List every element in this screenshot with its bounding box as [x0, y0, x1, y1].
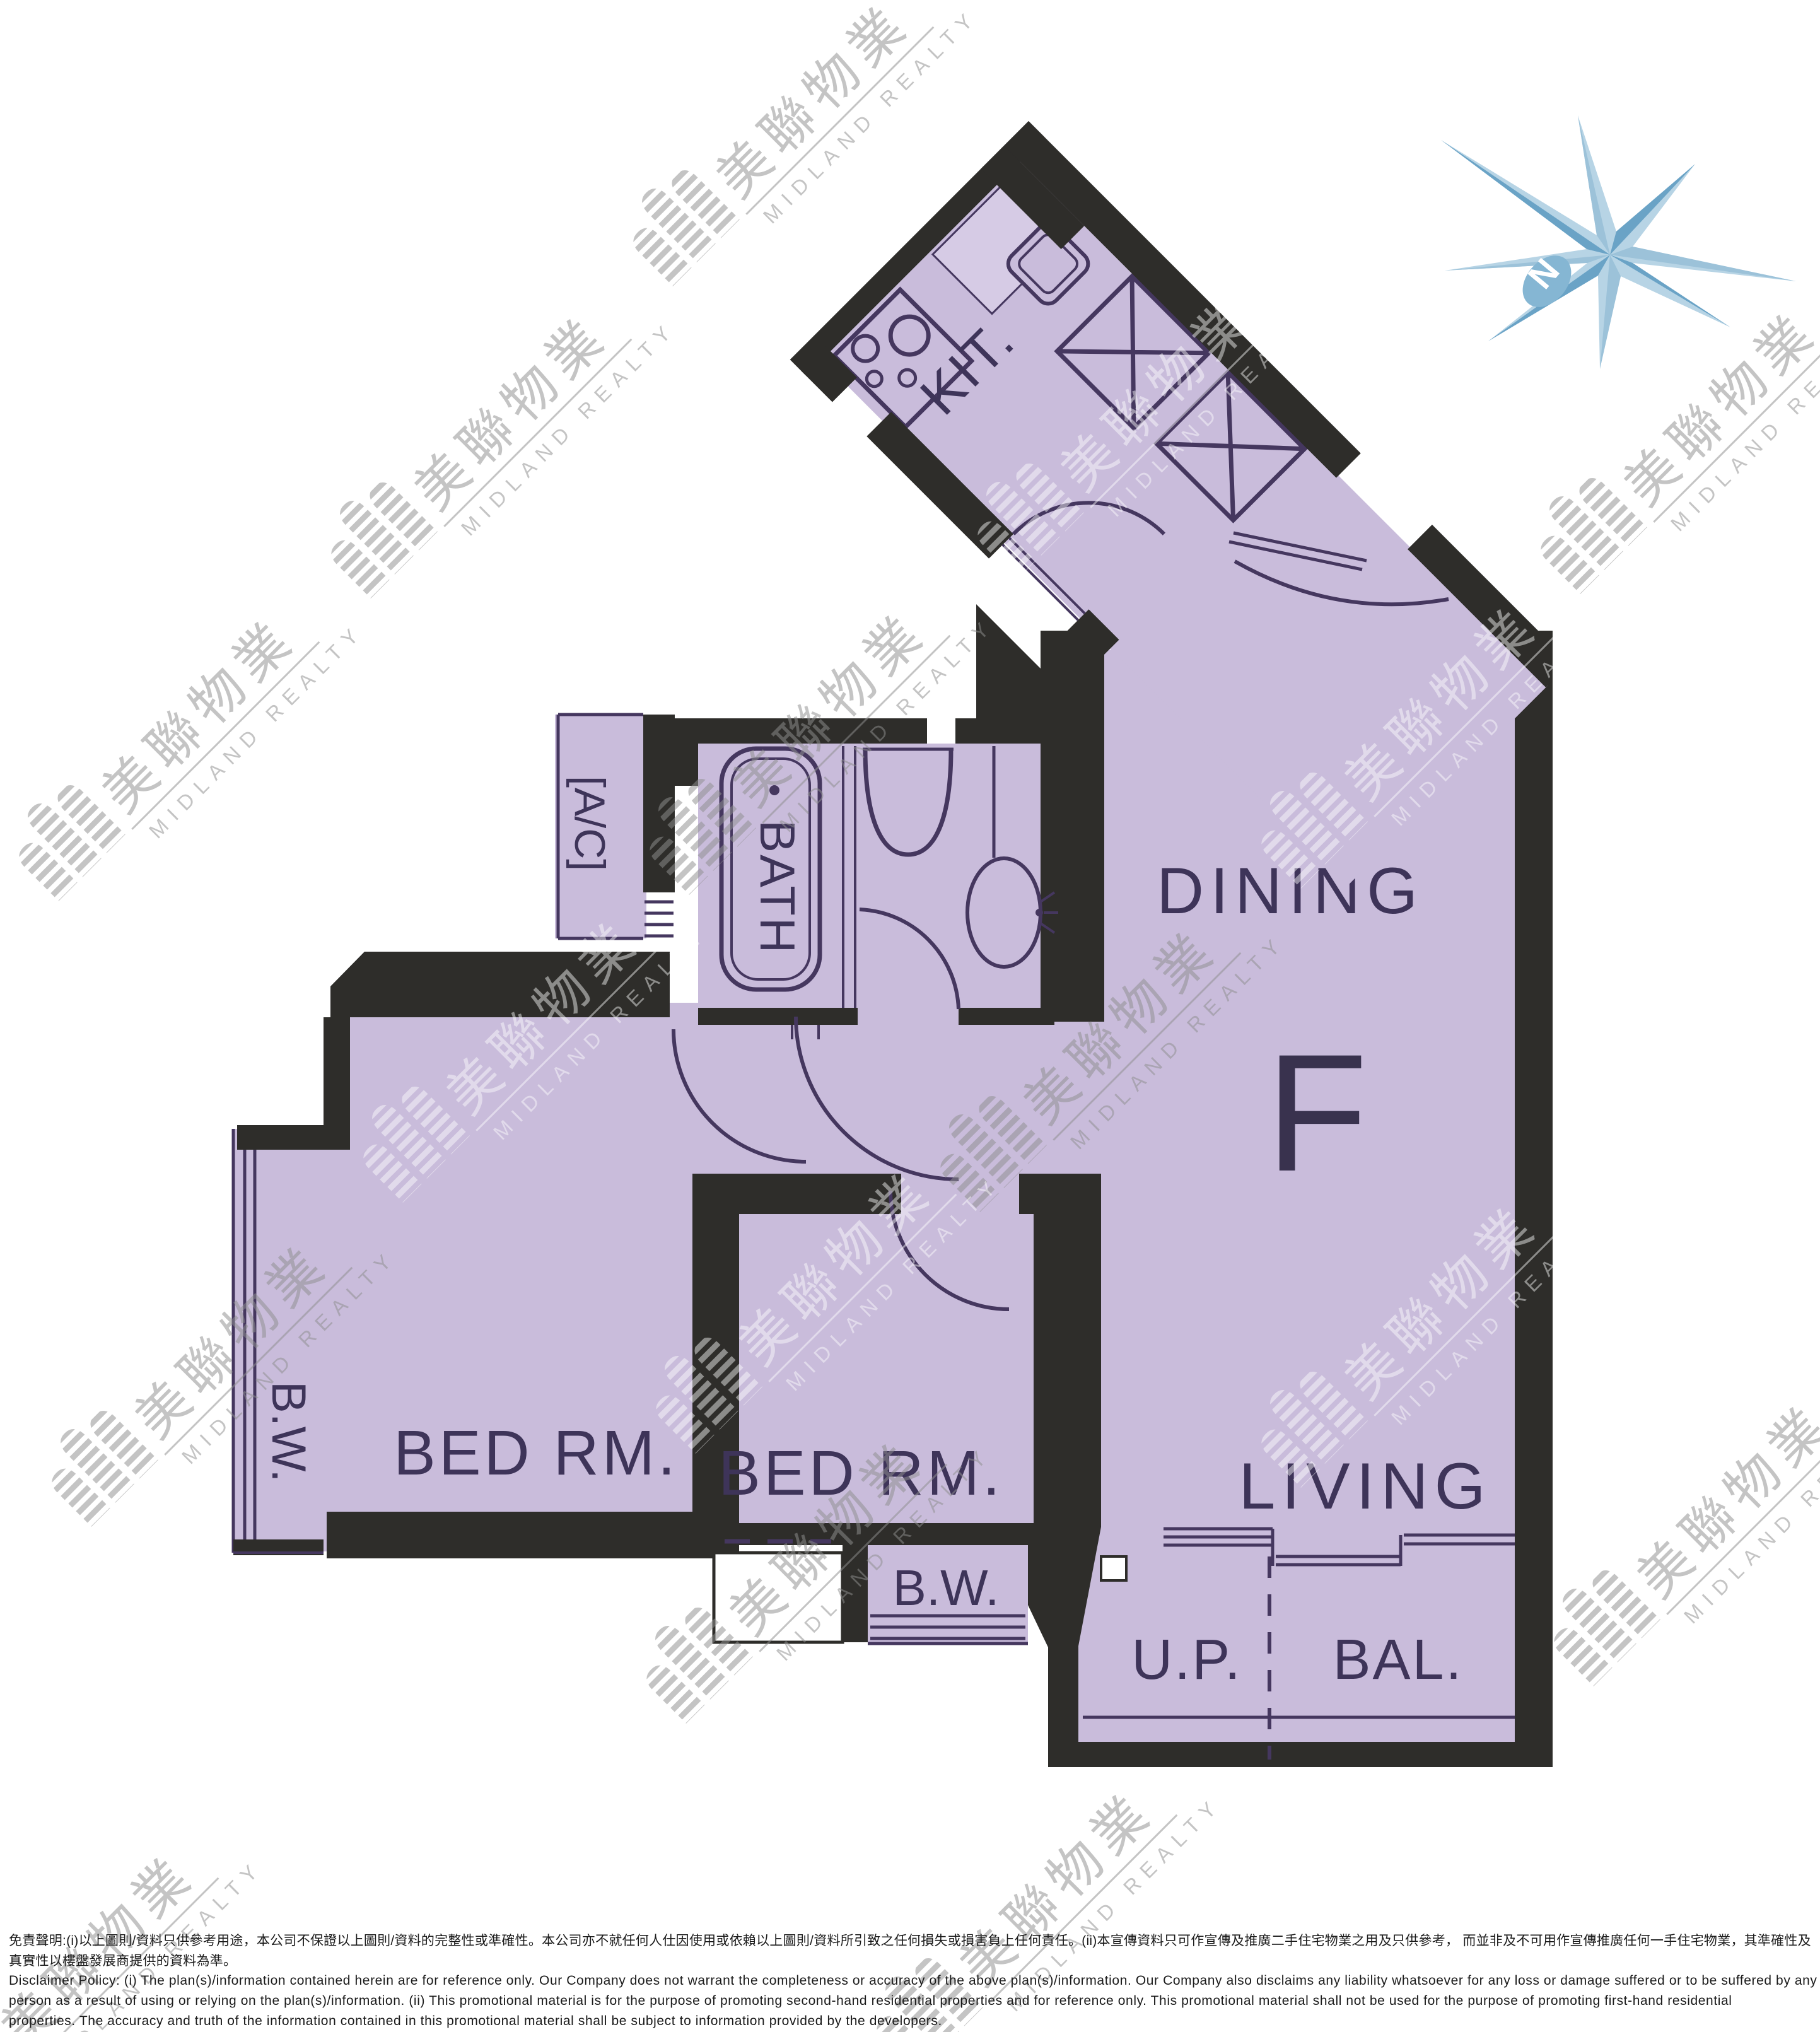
svg-text:person as a result of using or: person as a result of using or relying o… [9, 1994, 1732, 2008]
svg-text:真實性以樓盤發展商提供的資料為準。: 真實性以樓盤發展商提供的資料為準。 [9, 1954, 236, 1968]
svg-text:免責聲明:(i)以上圖則/資料只供參考用途，本公司不保證以上: 免責聲明:(i)以上圖則/資料只供參考用途，本公司不保證以上圖則/資料的完整性或… [9, 1934, 1811, 1948]
svg-text:U.P.: U.P. [1131, 1628, 1242, 1691]
svg-text:[A/C]: [A/C] [566, 776, 614, 871]
svg-text:BED RM.: BED RM. [394, 1418, 679, 1488]
svg-text:B.W.: B.W. [893, 1560, 1000, 1616]
svg-text:Disclaimer Policy: (i) The pla: Disclaimer Policy: (i) The plan(s)/infor… [9, 1973, 1817, 1988]
svg-text:BAL.: BAL. [1333, 1628, 1463, 1691]
svg-text:properties. The accuracy and t: properties. The accuracy and truth of th… [9, 2014, 942, 2028]
svg-text:F: F [1266, 1020, 1368, 1206]
svg-text:B.W.: B.W. [262, 1381, 315, 1482]
svg-text:BATH: BATH [750, 820, 805, 955]
svg-text:DINING: DINING [1157, 855, 1424, 928]
svg-text:LIVING: LIVING [1239, 1450, 1492, 1523]
